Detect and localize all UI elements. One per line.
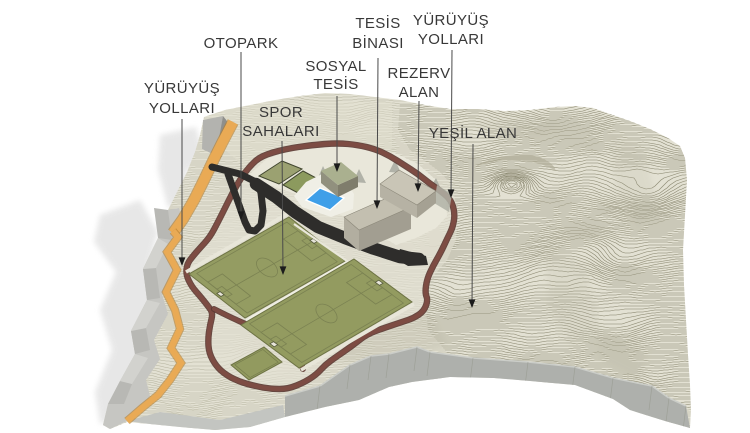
svg-text:ALAN: ALAN	[399, 84, 440, 101]
svg-text:YOLLARI: YOLLARI	[149, 100, 215, 117]
svg-text:REZERV: REZERV	[388, 65, 451, 82]
svg-text:OTOPARK: OTOPARK	[204, 35, 279, 52]
svg-text:YÜRÜYÜŞ: YÜRÜYÜŞ	[413, 11, 489, 29]
svg-text:SOSYAL: SOSYAL	[305, 58, 366, 75]
svg-text:YOLLARI: YOLLARI	[418, 31, 484, 48]
svg-text:BİNASI: BİNASI	[352, 34, 404, 52]
svg-text:TESİS: TESİS	[313, 75, 358, 93]
svg-text:YEŞİL ALAN: YEŞİL ALAN	[429, 124, 518, 142]
svg-text:SPOR: SPOR	[259, 104, 303, 121]
svg-text:TESİS: TESİS	[355, 14, 400, 32]
svg-text:SAHALARI: SAHALARI	[242, 123, 319, 140]
svg-text:YÜRÜYÜŞ: YÜRÜYÜŞ	[144, 79, 220, 97]
